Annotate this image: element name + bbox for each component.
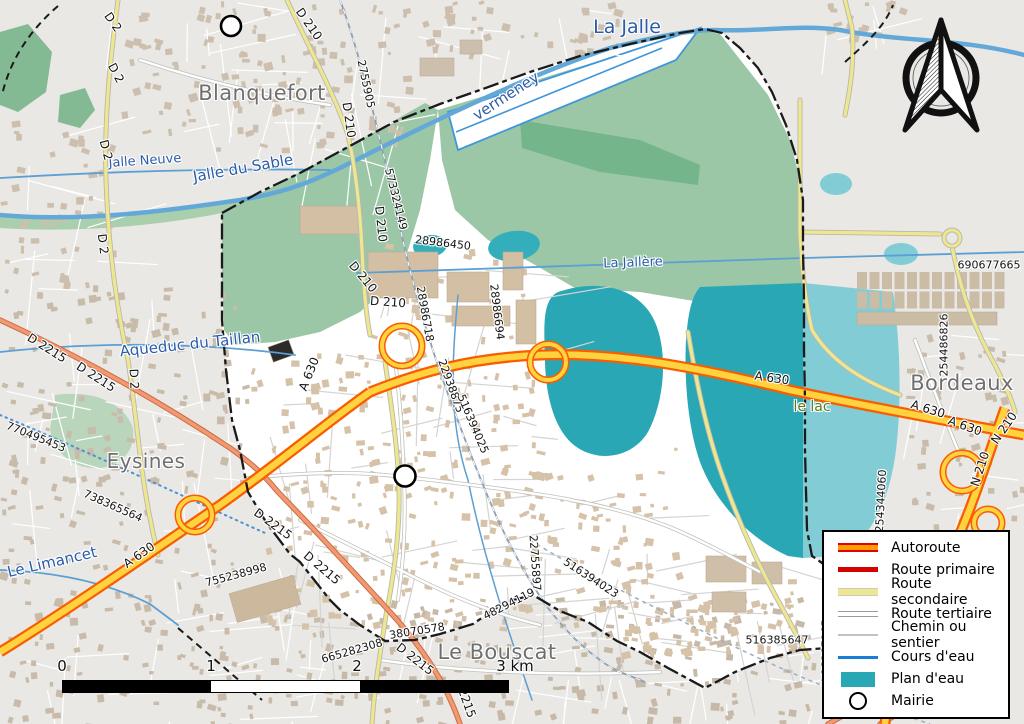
legend-row-cours-eau: Cours d'eau xyxy=(836,647,1008,667)
scale-segment xyxy=(211,681,359,692)
legend-label: Autoroute xyxy=(891,540,961,556)
legend-label: Plan d'eau xyxy=(891,671,964,687)
scale-segment xyxy=(63,681,211,692)
map-stage: Blanquefort Eysines Bordeaux Le Bouscat … xyxy=(0,0,1024,724)
scale-segment xyxy=(360,681,508,692)
north-arrow-icon xyxy=(893,16,989,138)
stream-line-icon xyxy=(836,656,880,660)
legend-row-mairie: Mairie xyxy=(836,691,1008,711)
legend-label: Mairie xyxy=(891,693,934,709)
path-line-icon xyxy=(836,634,880,636)
legend-row-plan-eau: Plan d'eau xyxy=(836,669,1008,689)
legend-label: Cours d'eau xyxy=(891,649,975,665)
legend-row-chemin: Chemin ou sentier xyxy=(836,625,1008,645)
secondary-line-icon xyxy=(836,588,880,596)
map-legend: Autoroute Route primaire Route secondair… xyxy=(822,530,1010,719)
autoroute-line-icon xyxy=(836,543,880,552)
mairie-marker-blanquefort xyxy=(221,16,241,36)
waterbody-swatch-icon xyxy=(836,672,880,687)
tertiary-line-icon xyxy=(836,611,880,617)
mairie-marker-bruges xyxy=(395,466,416,487)
primary-line-icon xyxy=(836,567,880,572)
legend-row-autoroute: Autoroute xyxy=(836,538,1008,558)
legend-row-secondaire: Route secondaire xyxy=(836,582,1008,602)
townhall-circle-icon xyxy=(836,692,880,710)
scale-bar xyxy=(62,680,509,693)
